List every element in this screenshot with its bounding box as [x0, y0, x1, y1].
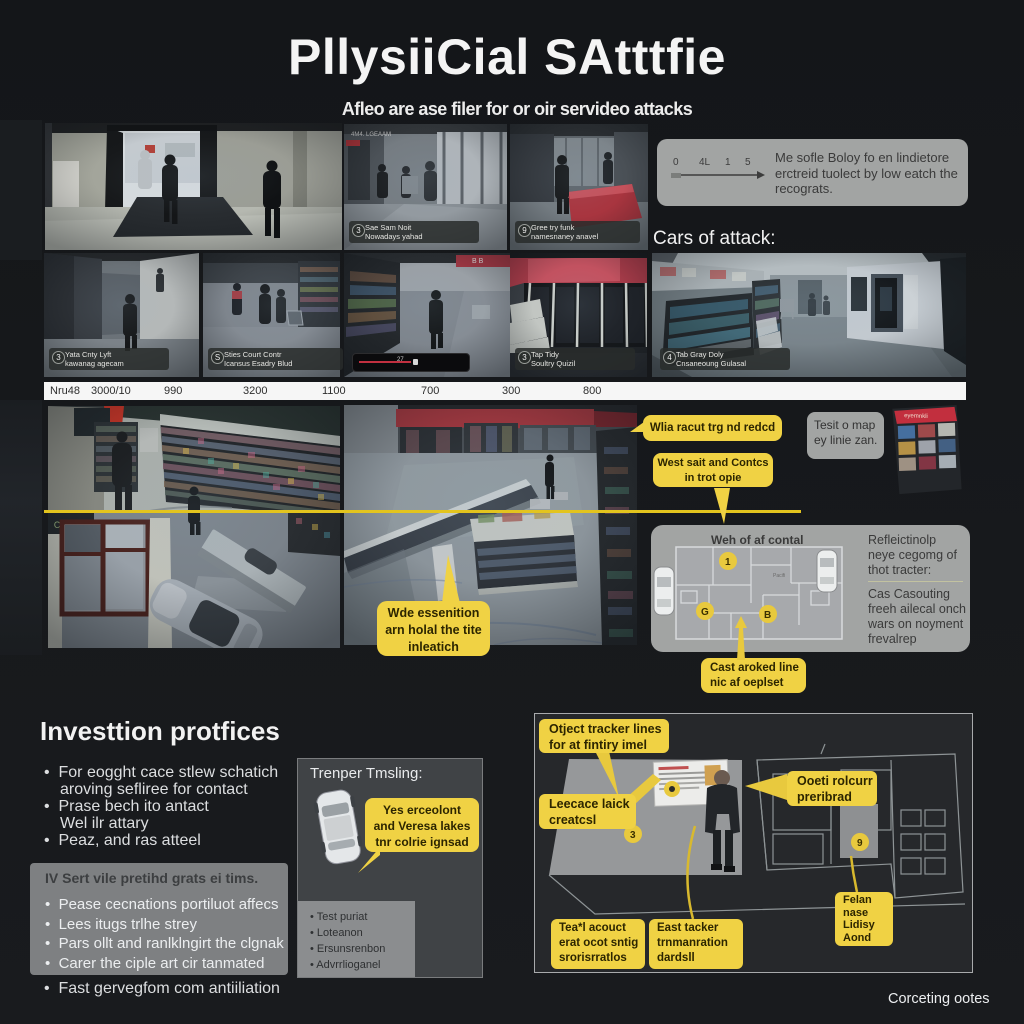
svg-text:1: 1 [725, 557, 731, 568]
svg-text:B B: B B [472, 258, 484, 265]
svg-text:9: 9 [857, 838, 863, 849]
svg-text:4M4. LGEAAM: 4M4. LGEAAM [351, 132, 391, 138]
svg-text:5: 5 [745, 157, 751, 168]
svg-text:Pacifi: Pacifi [773, 573, 785, 579]
svg-text:3: 3 [630, 830, 636, 841]
svg-text:B: B [764, 610, 771, 621]
svg-text:eyemnkli: eyemnkli [904, 413, 928, 420]
svg-text:4L: 4L [699, 157, 711, 168]
svg-text:G: G [701, 607, 709, 618]
svg-text:0: 0 [673, 157, 679, 168]
svg-text:1: 1 [725, 157, 731, 168]
